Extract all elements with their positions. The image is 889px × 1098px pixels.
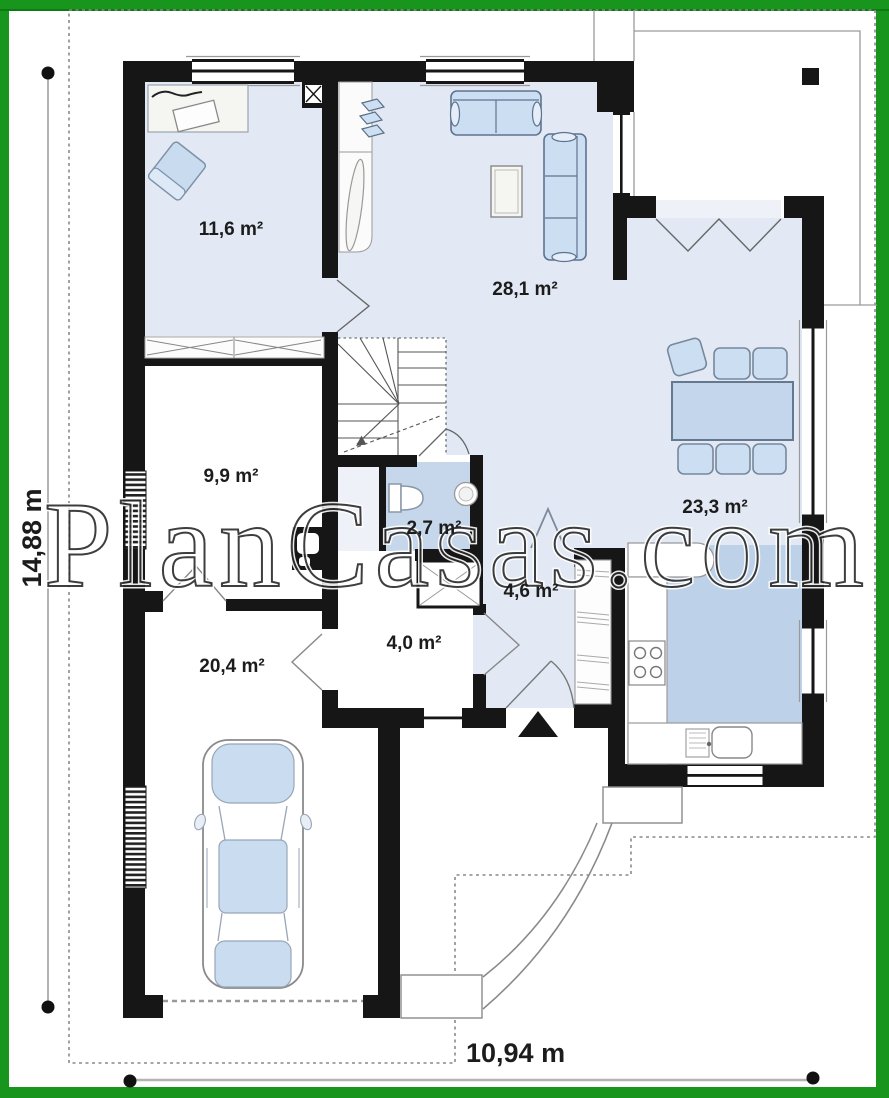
svg-text:11,6 m²: 11,6 m² [199, 219, 263, 240]
svg-text:20,4 m²: 20,4 m² [199, 656, 264, 677]
svg-text:23,3 m²: 23,3 m² [682, 497, 747, 518]
svg-text:9,9 m²: 9,9 m² [204, 466, 259, 487]
svg-text:10,94 m: 10,94 m [466, 1038, 565, 1068]
svg-text:4,0 m²: 4,0 m² [387, 633, 442, 654]
svg-text:14,88 m: 14,88 m [17, 488, 47, 587]
svg-text:28,1 m²: 28,1 m² [492, 279, 557, 300]
svg-text:4,6 m²: 4,6 m² [504, 581, 559, 602]
svg-text:2,7 m²: 2,7 m² [407, 518, 462, 539]
